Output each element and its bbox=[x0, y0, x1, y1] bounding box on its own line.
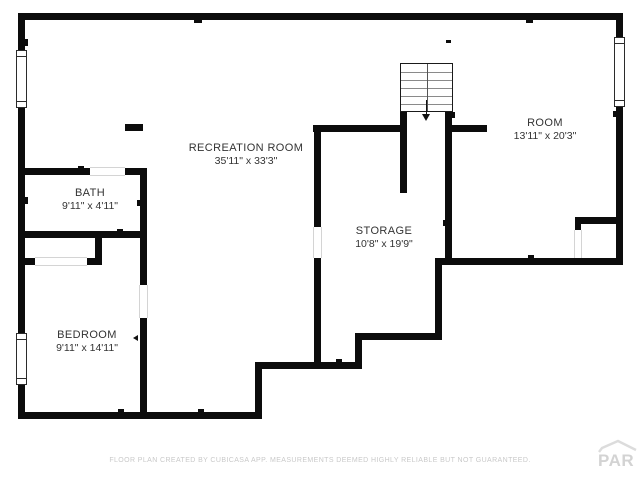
room-dimensions: 9'11" x 4'11" bbox=[30, 200, 150, 212]
wall-tick bbox=[526, 20, 533, 23]
stairs-down-arrow-icon bbox=[422, 114, 430, 121]
wall-tick bbox=[528, 255, 534, 258]
room-name: STORAGE bbox=[304, 225, 464, 237]
wall-storage-left-lower bbox=[314, 258, 321, 369]
room-dimensions: 35'11" x 33'3" bbox=[146, 155, 346, 167]
wall-closet-top bbox=[575, 217, 616, 224]
wall-tick bbox=[452, 112, 455, 118]
wall-bedroom-stub bbox=[95, 238, 102, 265]
wall-bedroom-top-left bbox=[18, 258, 35, 265]
door-bath bbox=[90, 167, 125, 176]
room-name: ROOM bbox=[465, 117, 625, 129]
stairs-direction-line bbox=[426, 100, 427, 115]
door-closet bbox=[574, 230, 582, 258]
wall-tick bbox=[117, 229, 123, 232]
stair-center-line bbox=[427, 64, 428, 111]
wall-tick bbox=[25, 197, 28, 204]
wall-tick bbox=[198, 409, 204, 412]
room-name: RECREATION ROOM bbox=[146, 142, 346, 154]
wall-storage-right-lower bbox=[435, 258, 442, 340]
brand-watermark: PAR bbox=[596, 439, 640, 477]
wall-bath-top-left bbox=[18, 168, 90, 175]
wall-step-horizontal bbox=[255, 362, 362, 369]
wall-tick bbox=[118, 409, 124, 412]
room-label-room: ROOM 13'11" x 20'3" bbox=[465, 117, 625, 142]
wall-tick bbox=[194, 20, 202, 23]
wall-room-bottom bbox=[435, 258, 623, 265]
wall-tick bbox=[446, 40, 451, 43]
room-label-bedroom: BEDROOM 9'11" x 14'11" bbox=[17, 329, 157, 354]
wall-step-vertical-2 bbox=[255, 362, 262, 419]
room-dimensions: 10'8" x 19'9" bbox=[304, 238, 464, 250]
wall-tick bbox=[336, 359, 342, 362]
door-bedroom-right bbox=[139, 285, 148, 318]
room-dimensions: 9'11" x 14'11" bbox=[17, 342, 157, 354]
wall-bath-bottom bbox=[18, 231, 147, 238]
wall-tick bbox=[25, 39, 28, 46]
room-name: BATH bbox=[30, 187, 150, 199]
wall-storage-bottom bbox=[355, 333, 442, 340]
room-dimensions: 13'11" x 20'3" bbox=[465, 130, 625, 142]
wall-recreation-stub bbox=[125, 124, 143, 131]
wall-exterior-top bbox=[18, 13, 623, 20]
wall-closet-stub bbox=[575, 217, 581, 230]
brand-watermark-text: PAR bbox=[598, 451, 634, 471]
wall-storage-top-left bbox=[313, 125, 404, 132]
room-label-bath: BATH 9'11" x 4'11" bbox=[30, 187, 150, 212]
window-right bbox=[614, 37, 625, 107]
door-bedroom-top bbox=[35, 257, 87, 266]
wall-bath-bedroom-right-upper bbox=[140, 168, 147, 285]
window-left-upper bbox=[16, 50, 27, 108]
wall-storage-left-upper bbox=[314, 125, 321, 227]
room-label-recreation: RECREATION ROOM 35'11" x 33'3" bbox=[146, 142, 346, 167]
room-label-storage: STORAGE 10'8" x 19'9" bbox=[304, 225, 464, 250]
wall-stairwell-left bbox=[400, 110, 407, 193]
floor-plan-canvas: RECREATION ROOM 35'11" x 33'3" BATH 9'11… bbox=[0, 0, 640, 480]
disclaimer-text: FLOOR PLAN CREATED BY CUBICASA APP. MEAS… bbox=[0, 457, 640, 464]
room-name: BEDROOM bbox=[17, 329, 157, 341]
wall-tick bbox=[78, 166, 84, 169]
